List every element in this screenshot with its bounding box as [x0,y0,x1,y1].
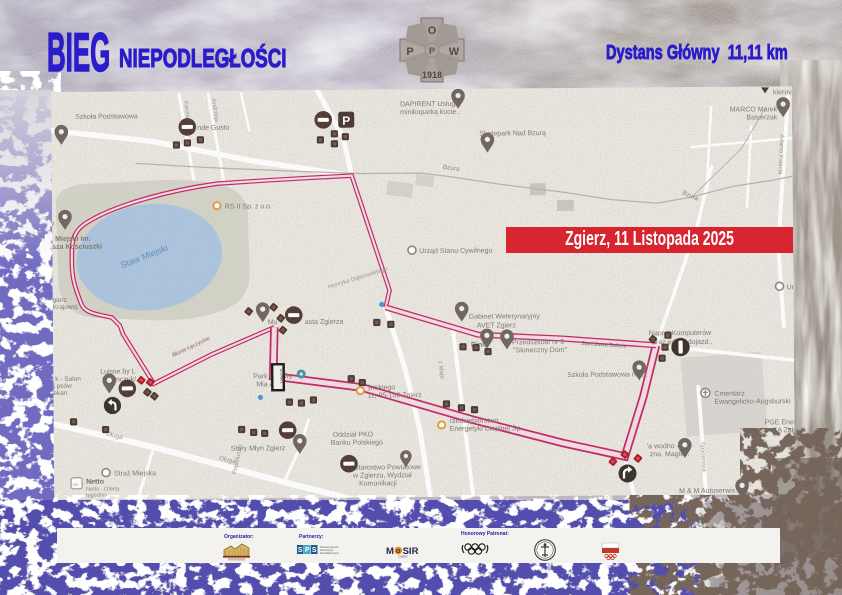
svg-text:1918: 1918 [422,70,442,80]
svg-text:Doswiadczonym: Doswiadczonym [320,551,339,555]
svg-text:S: S [312,547,317,554]
svg-text:S: S [298,547,303,554]
svg-text:Partnerzy:: Partnerzy: [299,534,324,540]
svg-text:W: W [449,46,460,58]
svg-text:ZGIERZ: ZGIERZ [398,555,408,559]
svg-text:M: M [386,546,394,557]
svg-text:Honorowy Patronat:: Honorowy Patronat: [461,531,509,537]
svg-text:O: O [428,25,437,37]
svg-text:P: P [305,547,310,554]
svg-text:O: O [396,549,401,555]
svg-text:P: P [406,46,413,58]
svg-text:P: P [429,46,435,56]
svg-text:Organizator:: Organizator: [224,534,254,540]
